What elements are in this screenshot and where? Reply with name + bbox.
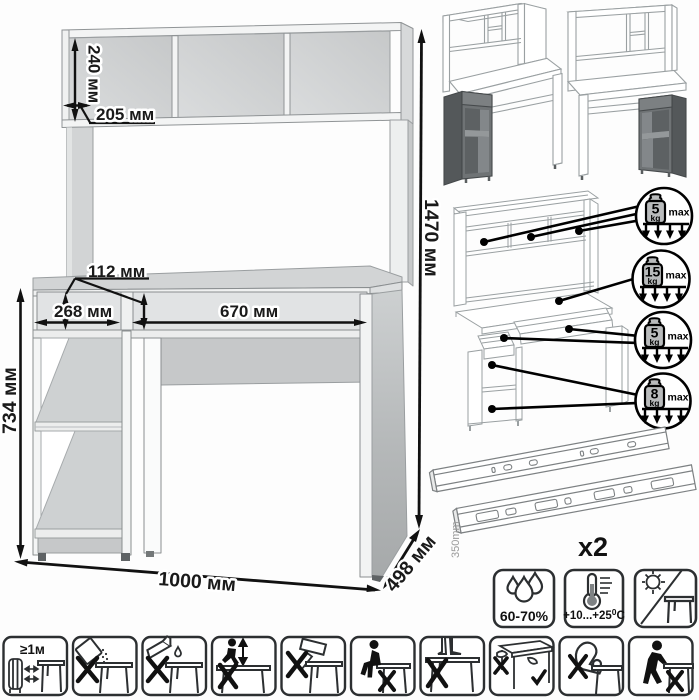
svg-text:1470 мм: 1470 мм xyxy=(420,199,442,277)
svg-text:max: max xyxy=(669,207,690,219)
svg-text:max: max xyxy=(668,392,689,404)
svg-text:max: max xyxy=(666,270,687,282)
svg-text:+10...+250С: +10...+250С xyxy=(563,607,625,622)
svg-text:60-70%: 60-70% xyxy=(500,608,549,624)
svg-text:≥1м: ≥1м xyxy=(20,642,45,657)
svg-text:240 мм: 240 мм xyxy=(85,45,104,103)
svg-text:kg: kg xyxy=(648,276,658,286)
svg-text:x2: x2 xyxy=(578,532,608,562)
svg-text:734 мм: 734 мм xyxy=(0,367,21,434)
svg-text:670 мм: 670 мм xyxy=(220,302,278,321)
svg-text:350mm: 350mm xyxy=(450,521,462,558)
svg-text:kg: kg xyxy=(650,337,660,347)
svg-text:max: max xyxy=(668,331,689,343)
svg-text:kg: kg xyxy=(651,213,661,223)
svg-text:205 мм: 205 мм xyxy=(96,105,154,124)
svg-text:268 мм: 268 мм xyxy=(54,302,112,321)
svg-text:kg: kg xyxy=(650,398,660,408)
